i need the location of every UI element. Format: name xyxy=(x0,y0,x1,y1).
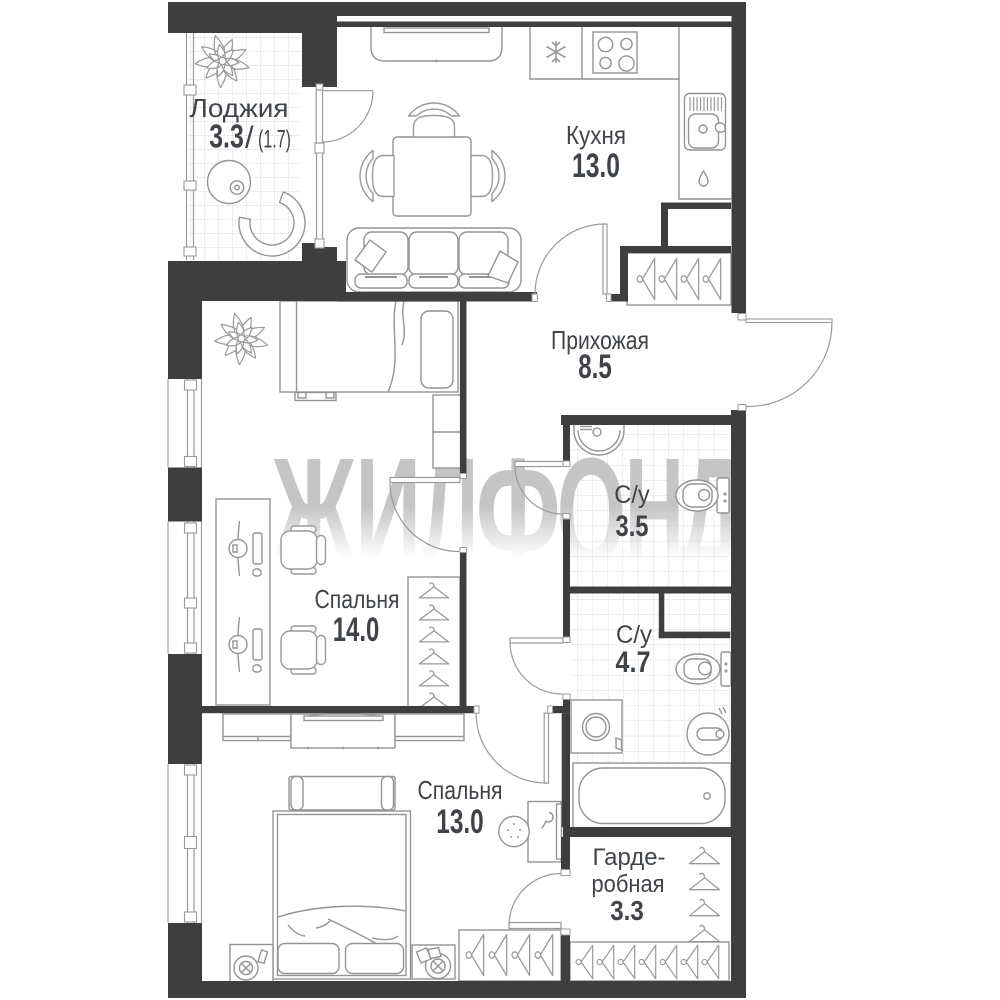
svg-text:8.5: 8.5 xyxy=(578,348,612,386)
svg-text:(1.7): (1.7) xyxy=(258,126,291,154)
svg-text:робная: робная xyxy=(592,871,665,898)
svg-text:Спальня: Спальня xyxy=(418,775,503,805)
svg-text:Спальня: Спальня xyxy=(315,584,400,614)
svg-text:Кухня: Кухня xyxy=(566,120,626,150)
svg-text:И: И xyxy=(355,426,421,598)
svg-text:/: / xyxy=(245,120,254,155)
svg-text:С/у: С/у xyxy=(616,621,652,649)
svg-text:Гарде-: Гарде- xyxy=(593,844,666,871)
svg-text:13.0: 13.0 xyxy=(572,147,620,185)
svg-text:14.0: 14.0 xyxy=(333,611,380,649)
svg-text:С/у: С/у xyxy=(614,481,650,509)
svg-text:4.7: 4.7 xyxy=(616,646,651,679)
svg-text:13.0: 13.0 xyxy=(436,803,484,841)
svg-text:3.3: 3.3 xyxy=(209,118,244,155)
svg-text:Ф: Ф xyxy=(476,427,561,598)
svg-text:3.5: 3.5 xyxy=(616,510,649,543)
svg-text:3.3: 3.3 xyxy=(610,895,644,926)
